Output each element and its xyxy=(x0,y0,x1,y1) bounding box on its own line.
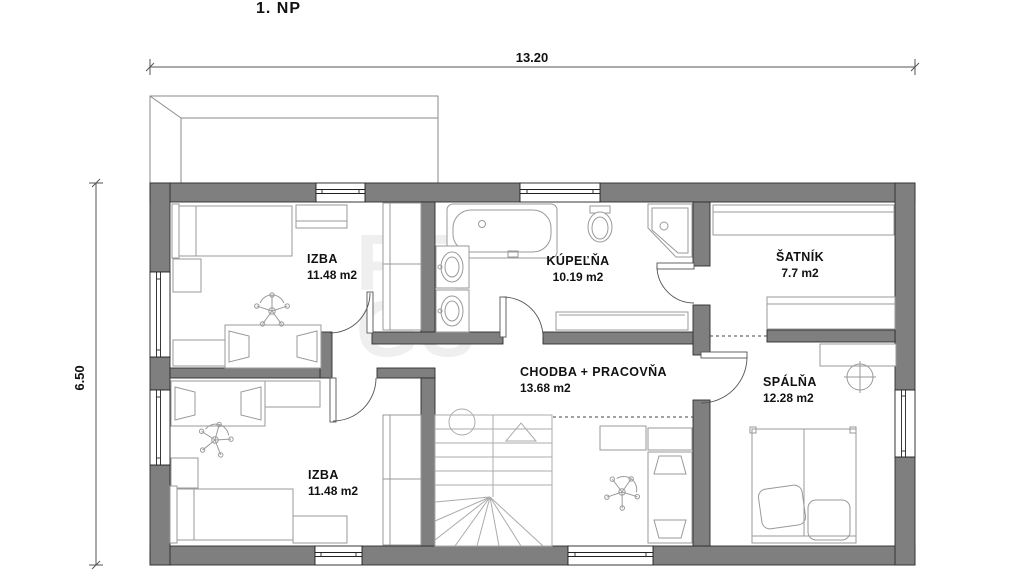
window-right-1 xyxy=(895,390,915,457)
cabinet xyxy=(293,516,347,543)
desk xyxy=(225,325,321,368)
stairs-pole xyxy=(449,409,475,435)
floor-plan-canvas: 1. NP PR GS xyxy=(0,0,1011,570)
window-bottom-2 xyxy=(568,546,653,565)
office-chair xyxy=(254,293,290,327)
wardrobe xyxy=(767,297,895,329)
shelf xyxy=(296,205,347,228)
bed-headboard xyxy=(170,486,177,543)
roof-outline xyxy=(150,96,438,183)
dimension-top: 13.20 xyxy=(146,50,919,75)
window-left-1 xyxy=(150,272,170,357)
room-area-kupelna: 10.19 m2 xyxy=(553,270,604,284)
furniture-izba-bottom xyxy=(170,381,421,545)
dimension-left-label: 6.50 xyxy=(72,365,87,390)
door-spalna xyxy=(701,352,747,403)
nightstand xyxy=(173,259,201,292)
work-table xyxy=(648,452,692,543)
desk xyxy=(600,426,646,450)
cabinet xyxy=(173,340,225,366)
furniture-pracovna xyxy=(598,426,692,543)
door-kupelna xyxy=(500,297,543,337)
sink xyxy=(436,290,469,332)
dimension-top-label: 13.20 xyxy=(516,50,549,65)
shelf xyxy=(265,381,320,407)
desk xyxy=(171,381,265,426)
stairs-up-arrow xyxy=(506,423,536,441)
office-chair xyxy=(598,467,647,516)
room-label-izba-top: IZBA xyxy=(307,252,338,266)
room-area-izba-top: 11.48 m2 xyxy=(307,268,357,282)
room-label-satnik: ŠATNÍK xyxy=(776,249,824,264)
window-bottom-1 xyxy=(315,546,362,565)
wardrobe xyxy=(383,203,421,330)
window-top-2 xyxy=(520,183,600,202)
vanity-desk xyxy=(820,344,896,366)
double-bed xyxy=(750,427,856,543)
room-area-izba-bottom: 11.48 m2 xyxy=(308,484,358,498)
room-area-spalna: 12.28 m2 xyxy=(763,391,814,405)
sink xyxy=(436,246,469,288)
door-izba-bottom xyxy=(330,378,376,422)
bed-headboard xyxy=(172,204,179,258)
nightstand xyxy=(171,458,198,488)
room-label-kupelna: KÚPEĽŇA xyxy=(546,253,609,268)
furniture-spalna xyxy=(750,344,896,543)
room-label-izba-bottom: IZBA xyxy=(308,468,339,482)
toilet xyxy=(588,206,612,242)
wardrobe xyxy=(713,205,894,235)
window-left-2 xyxy=(150,390,170,465)
room-label-spalna: SPÁLŇA xyxy=(763,374,817,389)
room-label-chodba: CHODBA + PRACOVŇA xyxy=(520,364,667,379)
door-shower xyxy=(657,263,694,303)
staircase xyxy=(435,409,552,546)
wardrobe xyxy=(383,415,421,545)
dimension-left: 6.50 xyxy=(72,179,103,569)
corner-shower xyxy=(648,204,692,257)
room-area-satnik: 7.7 m2 xyxy=(781,266,819,280)
window-top-1 xyxy=(316,183,365,202)
room-area-chodba: 13.68 m2 xyxy=(520,381,571,395)
floor-plan-drawing: PR GS 13.20 6.50 xyxy=(0,0,1011,570)
desk xyxy=(648,428,692,450)
